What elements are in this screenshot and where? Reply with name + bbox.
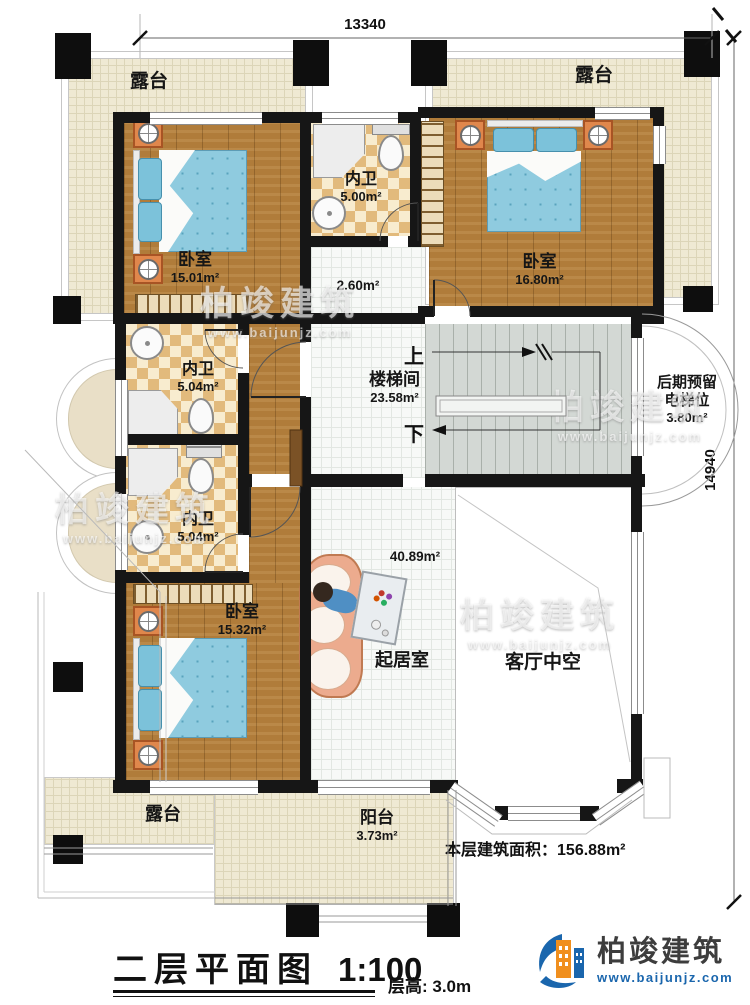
window <box>322 112 398 125</box>
room-bedroom-bottom-left-entry <box>249 487 300 583</box>
room-label-terrace-bottom-left: 露台 <box>120 800 206 826</box>
room-stairwell <box>425 324 631 474</box>
title-underline <box>113 990 375 993</box>
sliding-door <box>318 780 430 795</box>
wall-segment <box>300 397 311 474</box>
balcony-floor <box>215 778 453 904</box>
wall-segment <box>238 313 249 335</box>
company-logo: 柏竣建筑 www.baijunjz.com <box>534 930 733 992</box>
toilet <box>188 398 214 434</box>
room-label-void: 客厅中空 <box>488 652 598 675</box>
wall-segment <box>113 112 124 324</box>
room-label-corridor: 2.60m² <box>316 278 400 294</box>
wall-segment <box>418 306 434 317</box>
toilet <box>378 135 404 171</box>
bay-window-diagonal <box>447 782 503 827</box>
window <box>595 107 650 120</box>
lamp-icon <box>138 611 159 632</box>
room-label-bath-middle: 内卫 5.04m² <box>156 360 240 395</box>
nightstand <box>583 120 613 150</box>
bay-window-bottom <box>508 806 580 821</box>
bed-top-left <box>133 150 247 252</box>
window <box>150 112 262 125</box>
floor-area-summary: 本层建筑面积：156.88m² <box>445 836 626 860</box>
room-label-bedroom-top-right: 卧室 16.80m² <box>492 252 587 288</box>
column <box>53 296 81 324</box>
room-label-bedroom-top-left: 卧室 15.01m² <box>140 250 250 286</box>
toilet <box>372 124 410 135</box>
column <box>293 40 329 86</box>
room-void <box>455 487 632 781</box>
wardrobe-bedroom-bottom-left <box>133 584 253 604</box>
room-label-bath-top: 内卫 5.00m² <box>318 170 404 205</box>
room-label-bedroom-bottom-left: 卧室 15.32m² <box>192 602 292 638</box>
wall-segment <box>300 123 311 342</box>
lamp-icon <box>460 125 481 146</box>
column <box>684 31 720 77</box>
floor-height: 层高: 3.0m <box>388 972 471 997</box>
title-underline-thin <box>113 996 375 997</box>
window <box>653 126 666 164</box>
nightstand <box>133 606 163 636</box>
nightstand <box>133 740 163 770</box>
room-label-terrace-top-left: 露台 <box>103 66 195 93</box>
page-title: 二层平面图 <box>113 942 318 991</box>
window <box>631 532 644 714</box>
elevator-opening <box>631 338 644 456</box>
wardrobe-bedroom-top-left <box>135 294 249 314</box>
stair-up-label: 上 <box>404 340 424 369</box>
wardrobe-bedroom-top-right <box>421 121 444 247</box>
stair-down-label: 下 <box>404 418 424 447</box>
column <box>55 33 91 79</box>
wall-segment <box>425 474 645 487</box>
room-label-living: 起居室 <box>362 650 442 672</box>
room-label-balcony: 阳台 3.73m² <box>338 808 416 844</box>
logo-url: www.baijunjz.com <box>597 970 733 985</box>
wall-segment <box>300 236 388 247</box>
bed-bottom-left <box>133 638 247 738</box>
window <box>150 780 258 795</box>
nightstand <box>455 120 485 150</box>
lamp-icon <box>138 123 159 144</box>
floor-plan: 13340 14940 露台 露台 露台 卧室 15.01m² 内卫 5.00m… <box>0 0 750 1005</box>
column <box>286 903 319 937</box>
room-label-terrace-top-right: 露台 <box>548 60 640 87</box>
toilet <box>186 447 222 458</box>
room-label-living-area: 40.89m² <box>375 549 455 565</box>
wall-segment <box>300 474 403 487</box>
logo-building-icon <box>534 930 588 992</box>
room-label-bath-lower: 内卫 5.04m² <box>156 510 240 545</box>
wall-segment <box>123 434 249 445</box>
dimension-top: 13340 <box>325 16 405 33</box>
column <box>53 835 83 864</box>
room-label-elevator-reserve: 后期预留 电梯位 3.80m² <box>644 374 730 426</box>
wall-segment <box>238 474 252 487</box>
column <box>683 286 713 312</box>
window <box>115 380 128 456</box>
wall-segment <box>408 236 421 247</box>
plan-title: 二层平面图 1:100 <box>113 942 422 991</box>
logo-name: 柏竣建筑 <box>597 938 733 967</box>
dimension-right: 14940 <box>702 430 722 510</box>
column <box>427 903 460 937</box>
wall-segment <box>410 112 421 247</box>
lamp-icon <box>138 745 159 766</box>
room-label-stairwell: 楼梯间 23.58m² <box>342 370 447 406</box>
room-vestibule <box>249 324 300 474</box>
wall-segment <box>123 572 249 583</box>
window <box>115 494 128 570</box>
wall-segment <box>300 487 311 792</box>
sink <box>130 326 164 360</box>
lamp-icon <box>588 125 609 146</box>
wall-segment <box>113 313 425 324</box>
bed-top-right <box>487 120 581 232</box>
column <box>411 40 447 86</box>
column <box>53 662 83 692</box>
toilet <box>188 458 214 494</box>
